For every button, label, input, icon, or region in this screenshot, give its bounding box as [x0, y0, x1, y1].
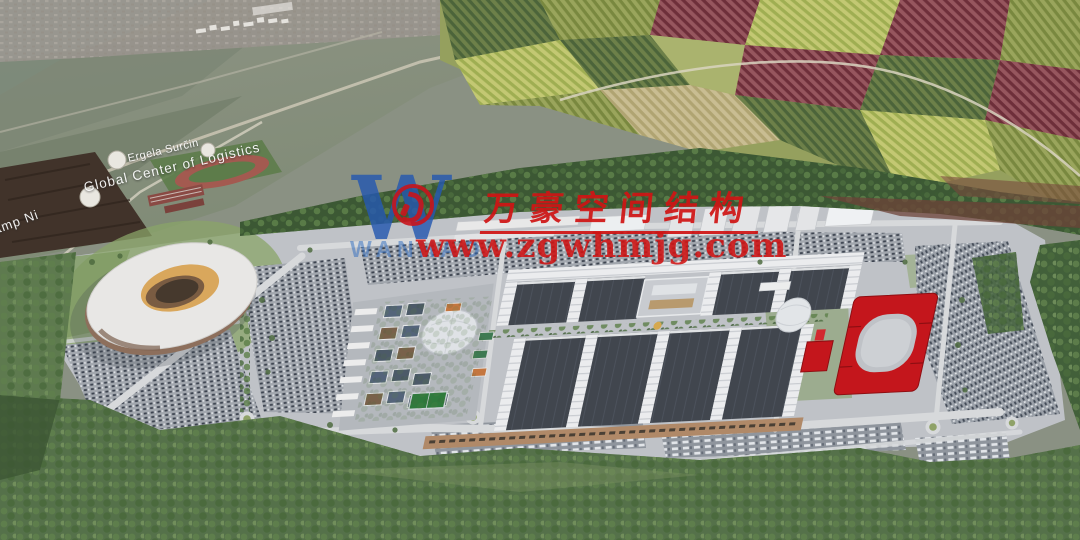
watermark-website: www.zgwhmjg.com	[416, 226, 788, 266]
central-hall	[637, 277, 709, 317]
aerial-render-screenshot: Ergela Surčin Global Center of Logistics…	[0, 0, 1080, 540]
scene-render	[0, 0, 1080, 540]
logo-emblem-icon	[392, 184, 434, 226]
